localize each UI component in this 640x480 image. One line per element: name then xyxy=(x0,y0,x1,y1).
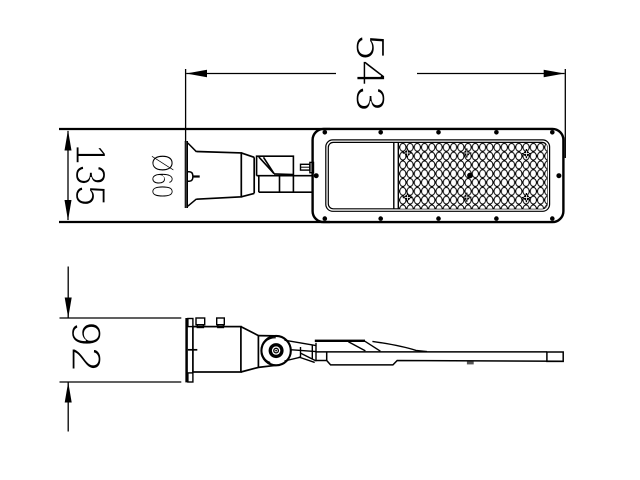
svg-text:135: 135 xyxy=(66,144,113,206)
svg-text:543: 543 xyxy=(348,35,394,112)
svg-text:92: 92 xyxy=(63,322,110,372)
svg-text:Ø60: Ø60 xyxy=(145,154,180,198)
